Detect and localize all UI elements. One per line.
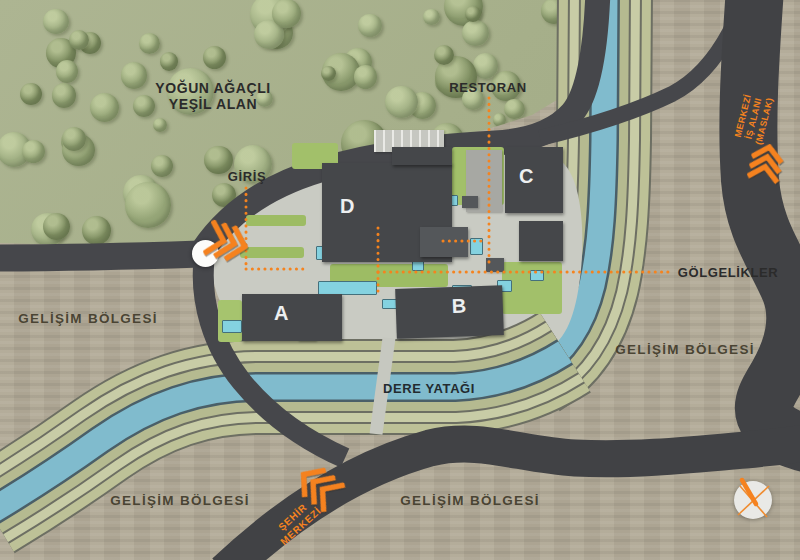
tree-icon: [121, 62, 148, 89]
building-b: B: [395, 285, 504, 339]
tree-icon: [581, 176, 598, 193]
tree-icon: [566, 240, 581, 255]
forest-label: YOĞUN AĞAÇLI YEŞİL ALAN: [155, 80, 271, 112]
tree-icon: [462, 20, 489, 47]
building-c-wing: [519, 221, 563, 261]
tree-icon: [56, 60, 79, 83]
tree-icon: [52, 83, 77, 108]
tree-icon: [90, 93, 120, 123]
tree-icon: [43, 9, 69, 35]
tree-icon: [272, 0, 301, 28]
development-zone-label-west: GELİŞİM BÖLGESİ: [18, 311, 158, 326]
building-a: A: [242, 294, 342, 341]
forest-label-line1: YOĞUN AĞAÇLI: [155, 80, 271, 96]
tree-icon: [153, 118, 167, 132]
building-c: C: [505, 147, 563, 213]
small-structure: [462, 196, 478, 208]
development-zone-label-south: GELİŞİM BÖLGESİ: [400, 493, 540, 508]
water-pool: [318, 281, 377, 295]
canopies-label: GÖLGELİKLER: [678, 265, 779, 280]
tree-icon: [493, 113, 507, 127]
water-pool: [222, 320, 242, 333]
tree-icon: [160, 52, 179, 71]
courtyard-building: [420, 227, 468, 257]
building-d-wing: [392, 147, 452, 165]
tree-icon: [71, 263, 89, 281]
tree-icon: [258, 263, 275, 280]
west-road: [0, 254, 200, 258]
tree-icon: [136, 246, 156, 266]
stream-label: DERE YATAĞI: [383, 381, 475, 396]
tree-icon: [541, 0, 567, 24]
water-pool: [470, 238, 483, 255]
development-zone-label-southwest: GELİŞİM BÖLGESİ: [110, 493, 250, 508]
tree-icon: [434, 45, 454, 65]
building-d-label: D: [340, 195, 355, 218]
small-structure: [486, 258, 504, 272]
tree-icon: [139, 33, 160, 54]
tree-icon: [601, 204, 616, 219]
city-center-road-label: ŞEHİR MERKEZİ: [260, 487, 334, 557]
tree-icon: [62, 127, 86, 151]
tree-icon: [587, 213, 604, 230]
entrance-label: GİRİŞ: [228, 169, 266, 184]
tree-icon: [423, 9, 440, 26]
lawn: [246, 215, 306, 226]
tree-icon: [358, 14, 382, 38]
tree-icon: [43, 213, 70, 240]
restaurant-label: RESTORAN: [449, 80, 527, 95]
water-pool: [530, 270, 544, 281]
tree-icon: [22, 140, 45, 163]
tree-icon: [125, 182, 171, 228]
tree-icon: [82, 216, 111, 245]
tree-icon: [593, 1, 613, 21]
building-b-label: B: [451, 294, 467, 318]
development-zone-label-east: GELİŞİM BÖLGESİ: [615, 342, 755, 357]
building-a-label: A: [274, 302, 289, 325]
site-plan: D A B C YOĞUN AĞAÇLI YEŞİL ALAN GİRİŞ RE…: [0, 0, 800, 560]
tree-icon: [203, 46, 227, 70]
building-c-label: C: [519, 165, 534, 188]
tree-icon: [151, 155, 173, 177]
tree-icon: [20, 83, 42, 105]
tree-icon: [212, 183, 236, 207]
lawn: [240, 247, 304, 258]
tree-icon: [133, 95, 155, 117]
east-highway: [748, 0, 800, 446]
tree-icon: [69, 30, 89, 50]
stream-south: [0, 352, 565, 512]
forest-label-line2: YEŞİL ALAN: [155, 96, 271, 112]
tree-icon: [504, 99, 525, 120]
tree-icon: [605, 261, 630, 286]
compass-icon: [734, 481, 772, 519]
tree-icon: [354, 65, 378, 89]
